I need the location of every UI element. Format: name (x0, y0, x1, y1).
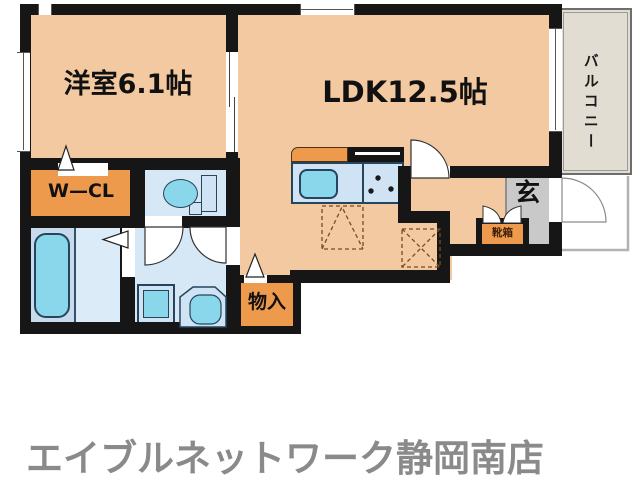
storage-label: 物入 (241, 293, 293, 313)
storage-door-mark (246, 254, 264, 277)
western-room-label: 洋室6.1帖 (40, 71, 216, 99)
floor-hatch-triangle (322, 206, 363, 249)
shoe-box-door-left (483, 206, 501, 223)
ldk-label: LDK12.5帖 (312, 77, 498, 107)
toilet-door-swing (145, 227, 183, 265)
shoe-box-door-right (503, 206, 521, 223)
ldk-door-swing (411, 140, 449, 178)
floorplan-canvas: 洋室6.1帖 LDK12.5帖 W—CL バルコニー 玄 物入 靴箱 エイブルネ… (0, 0, 640, 480)
wcl-label: W—CL (36, 182, 126, 202)
shoe-box-label: 靴箱 (482, 228, 523, 239)
entrance-label: 玄 (506, 180, 549, 206)
vanity-sink (180, 287, 226, 327)
bathroom-door-mark (103, 231, 128, 248)
store-name: エイブルネットワーク静岡南店 (26, 428, 626, 480)
stove-burners (368, 175, 393, 193)
floor-hatch-cross (402, 229, 440, 267)
wcl-door-mark (58, 146, 74, 170)
front-door-swing (562, 178, 606, 222)
washroom-door-swing (190, 227, 226, 263)
balcony-label: バルコニー (582, 30, 598, 175)
